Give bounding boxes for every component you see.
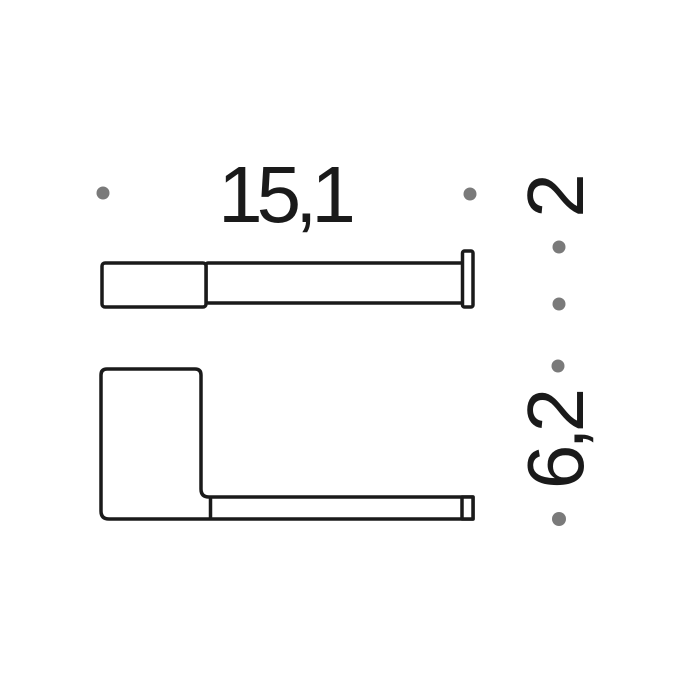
depth-dot-top xyxy=(553,241,566,254)
top-view-mounting-plate xyxy=(102,263,206,307)
top-view-bar xyxy=(206,263,463,303)
top-view-end-cap xyxy=(463,251,474,307)
technical-drawing: 15,1 2 6,2 xyxy=(0,0,700,700)
dimension-labels: 15,1 2 6,2 xyxy=(218,150,600,489)
depth-dimension-label: 2 xyxy=(511,177,600,218)
height-dot-bottom xyxy=(552,512,566,526)
top-view xyxy=(102,251,473,307)
side-view-profile xyxy=(101,369,473,519)
width-dot-right xyxy=(464,188,477,201)
drawing-canvas: 15,1 2 6,2 xyxy=(0,0,700,700)
side-view-end-cap xyxy=(462,497,473,519)
width-dot-left xyxy=(97,187,110,200)
width-dimension-label: 15,1 xyxy=(218,150,352,239)
depth-dot-bottom xyxy=(553,298,566,311)
height-dimension-label: 6,2 xyxy=(511,391,600,489)
height-dot-top xyxy=(552,360,565,373)
side-view xyxy=(101,369,473,519)
